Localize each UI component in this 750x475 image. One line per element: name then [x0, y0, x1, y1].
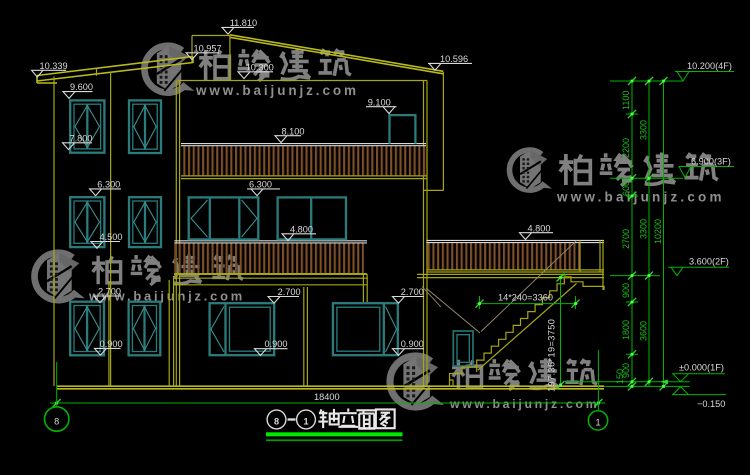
svg-text:11.810: 11.810 — [230, 18, 257, 28]
svg-text:6.300: 6.300 — [97, 180, 120, 190]
svg-text:4.500: 4.500 — [100, 232, 123, 242]
svg-text:10.300: 10.300 — [246, 63, 274, 73]
svg-text:18400: 18400 — [314, 392, 340, 402]
svg-text:600: 600 — [621, 181, 631, 196]
svg-text:6.900(3F): 6.900(3F) — [691, 157, 731, 167]
svg-text:3.600(2F): 3.600(2F) — [689, 257, 729, 267]
svg-text:www.baijunjz.com: www.baijunjz.com — [195, 83, 359, 98]
svg-text:150: 150 — [615, 369, 625, 384]
svg-text:3300: 3300 — [639, 120, 649, 140]
svg-text:www.baijunjz.com: www.baijunjz.com — [449, 397, 599, 411]
svg-text:10.596: 10.596 — [440, 54, 468, 64]
svg-text:197.36*19=3750: 197.36*19=3750 — [547, 319, 557, 392]
svg-text:3600: 3600 — [639, 321, 649, 341]
svg-text:2700: 2700 — [621, 229, 631, 249]
svg-text:8.100: 8.100 — [282, 126, 305, 136]
svg-text:0.900: 0.900 — [100, 339, 123, 349]
svg-text:8: 8 — [274, 417, 279, 427]
svg-text:0.900: 0.900 — [265, 339, 288, 349]
svg-text:8: 8 — [54, 417, 59, 427]
svg-text:10.339: 10.339 — [40, 61, 68, 71]
svg-text:2.700: 2.700 — [98, 287, 121, 297]
svg-text:2.700: 2.700 — [278, 287, 301, 297]
svg-text:9.600: 9.600 — [70, 82, 93, 92]
svg-text:www.baijunjz.com: www.baijunjz.com — [556, 190, 725, 205]
svg-text:3300: 3300 — [639, 219, 649, 239]
svg-text:−0.150: −0.150 — [697, 399, 725, 409]
svg-text:0.900: 0.900 — [401, 339, 424, 349]
svg-text:2.700: 2.700 — [401, 287, 424, 297]
svg-text:1: 1 — [303, 417, 308, 427]
svg-text:4.800: 4.800 — [528, 223, 551, 233]
svg-text:10.200(4F): 10.200(4F) — [687, 61, 732, 71]
svg-text:900: 900 — [621, 283, 631, 298]
svg-text:7.800: 7.800 — [70, 133, 93, 143]
svg-text:6.300: 6.300 — [249, 180, 272, 190]
svg-text:4.800: 4.800 — [290, 224, 313, 234]
svg-text:9.100: 9.100 — [368, 97, 391, 107]
svg-text:14*240=3360: 14*240=3360 — [498, 292, 553, 302]
svg-text:1100: 1100 — [621, 91, 631, 110]
svg-text:10200: 10200 — [653, 219, 663, 244]
svg-text:±0.000(1F): ±0.000(1F) — [679, 363, 724, 373]
svg-text:2200: 2200 — [621, 138, 631, 158]
svg-text:1: 1 — [595, 417, 600, 427]
svg-text:1800: 1800 — [621, 320, 631, 340]
svg-text:10.957: 10.957 — [194, 44, 222, 54]
